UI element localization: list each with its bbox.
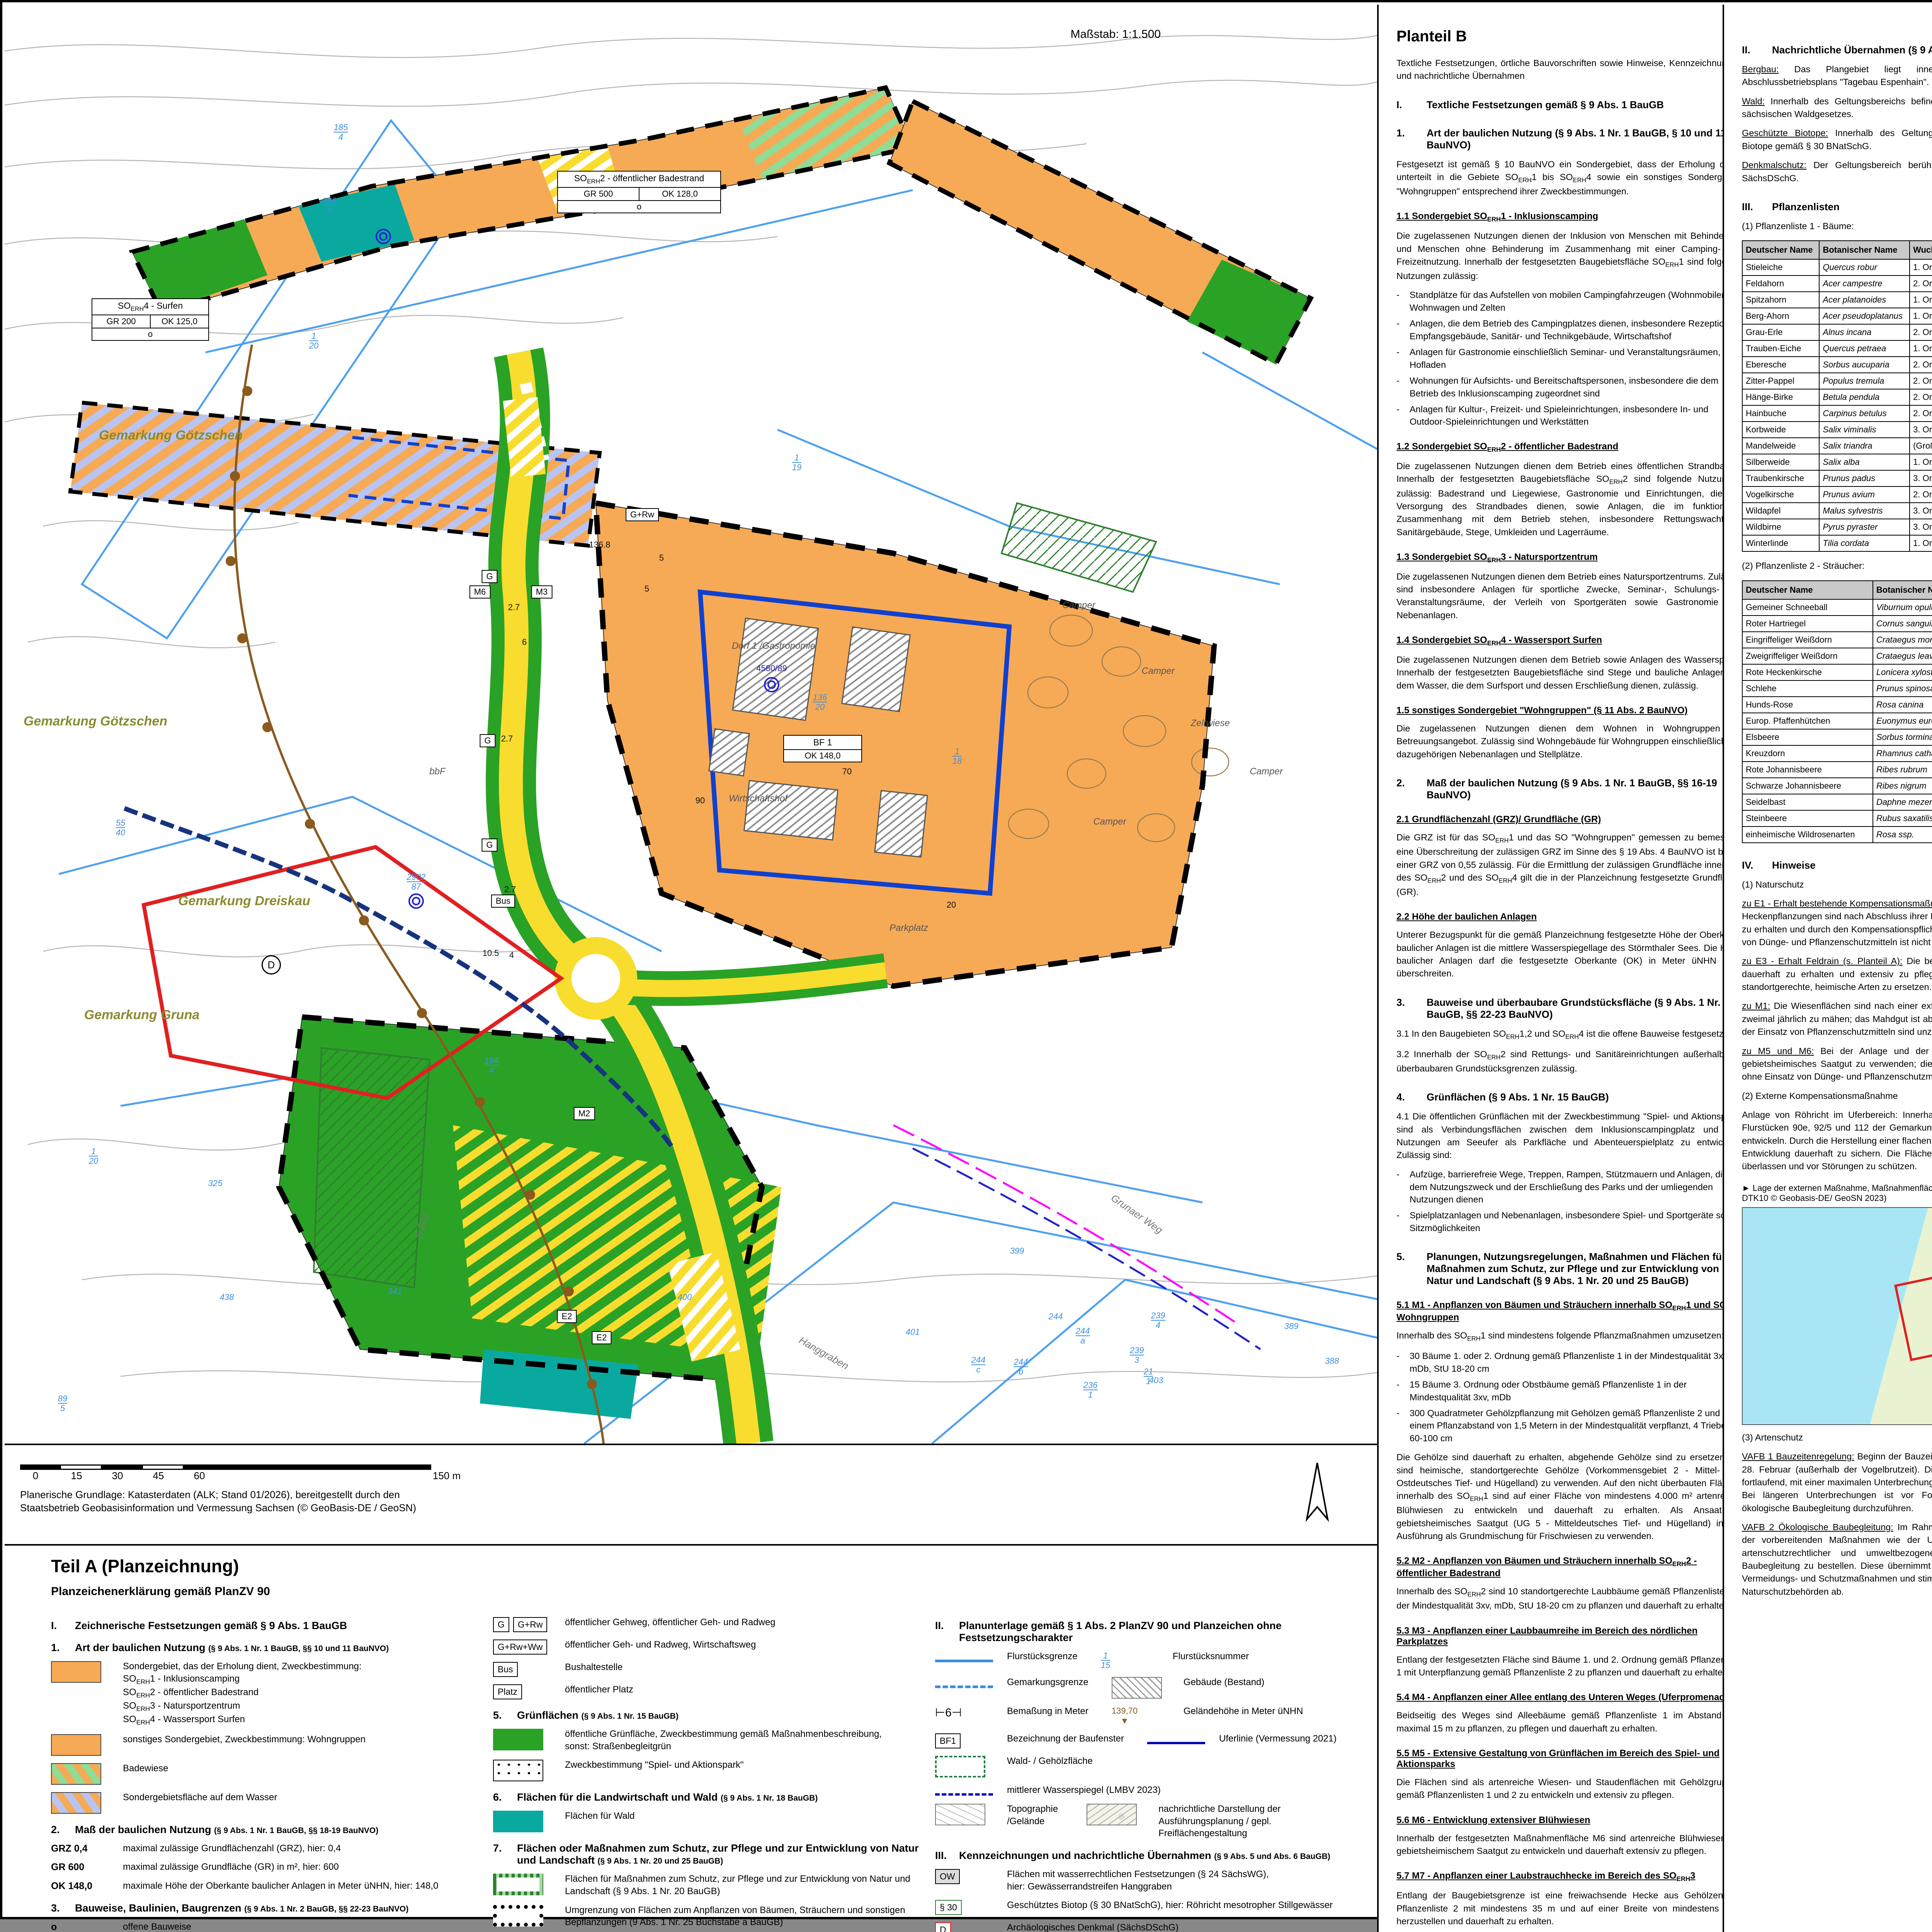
- legend-swatch: ⊢6⊣: [935, 1706, 993, 1719]
- list-caption: (1) Naturschutz: [1742, 878, 1932, 891]
- legend-item: OWFlächen mit wasserrechtlichen Festsetz…: [935, 1868, 1362, 1893]
- table-row: Gemeiner SchneeballViburnum opulusM1 M3 …: [1742, 599, 1932, 616]
- table-row: Europ. PfaffenhütchenEuonymus europaeusM…: [1742, 713, 1932, 729]
- legend-item-label: Geländehöhe in Meter üNHN: [1184, 1705, 1303, 1718]
- legend-item-pair: Flurstücksgrenze115Flurstücksnummer: [935, 1650, 1362, 1670]
- table-row: VogelkirschePrunus avium2. OrdnungM1 M5: [1742, 486, 1932, 503]
- legend-item: GRZ 0,4maximal zulässige Grundflächenzah…: [51, 1842, 478, 1855]
- table-cell: Silberweide: [1742, 454, 1819, 470]
- paragraph: Innerhalb des SOERH1 sind mindestens fol…: [1396, 1329, 1742, 1344]
- list-item-text: Aufzüge, barrierefreie Wege, Treppen, Ra…: [1410, 1168, 1742, 1206]
- legend-section-number: 3.: [51, 1902, 75, 1914]
- legend-section-number: III.: [935, 1850, 959, 1862]
- table-cell: Tilia cordata: [1819, 535, 1910, 551]
- legend-item-label: öffentlicher Platz: [565, 1684, 633, 1696]
- legend-title: Teil A (Planzeichnung): [51, 1556, 1377, 1577]
- table-cell: einheimische Wildrosenarten: [1742, 827, 1873, 843]
- column-title: Planteil B: [1396, 28, 1742, 45]
- paragraph: Denkmalschutz: Der Geltungsbereich berüh…: [1742, 159, 1932, 185]
- subsection-heading: 1.1 Sondergebiet SOERH1 - Inklusionscamp…: [1396, 211, 1742, 223]
- subsection-heading: 1.2 Sondergebiet SOERH2 - öffentlicher B…: [1396, 441, 1742, 454]
- legend-swatch: OK 148,0: [51, 1881, 109, 1892]
- figure-map: [1742, 1207, 1932, 1425]
- legend-swatch: G+Rw+Ww: [493, 1639, 551, 1655]
- table-cell: Roter Hartriegel: [1742, 616, 1873, 632]
- table-cell: Cornus sanguinea: [1873, 616, 1932, 632]
- table-cell: 2. Ordnung: [1910, 276, 1932, 292]
- table-row: Zweigriffeliger WeißdornCrataegus leavig…: [1742, 648, 1932, 664]
- list-item-text: Anlagen, die dem Betrieb des Campingplat…: [1410, 317, 1742, 343]
- legend-column: II.Planunterlage gemäß § 1 Abs. 2 PlanZV…: [935, 1610, 1377, 1932]
- table-cell: Rote Johannisbeere: [1742, 762, 1873, 778]
- table-cell: Hainbuche: [1742, 405, 1819, 422]
- table-cell: Quercus petraea: [1819, 340, 1910, 357]
- paragraph: Entlang der Baugebietsgrenze ist eine fr…: [1396, 1889, 1742, 1928]
- legend-section-title: Bauweise, Baulinien, Baugrenzen (§ 9 Abs…: [75, 1902, 408, 1914]
- table-row: Roter HartriegelCornus sanguineaM1 M3 M7: [1742, 616, 1932, 632]
- list-item: -Wohnungen für Aufsichts- und Bereitscha…: [1396, 374, 1742, 400]
- legend-item-label: öffentlicher Geh- und Radweg, Wirtschaft…: [565, 1639, 756, 1651]
- legend-item-label: Geschütztes Biotop (§ 30 BNatSchG), hier…: [1007, 1899, 1333, 1912]
- section-title: Maß der baulichen Nutzung (§ 9 Abs. 1 Nr…: [1427, 777, 1742, 801]
- legend-section-number: I.: [51, 1620, 75, 1632]
- legend-swatch: [51, 1661, 109, 1683]
- subsection-heading: 5.7 M7 - Anpflanzen einer Laubstrauchhec…: [1396, 1871, 1742, 1883]
- legend-text-symbol: o: [51, 1922, 57, 1932]
- bullet: -: [1396, 1378, 1410, 1404]
- legend-section-title: Planunterlage gemäß § 1 Abs. 2 PlanZV 90…: [959, 1620, 1362, 1644]
- list-item-text: 300 Quadratmeter Gehölzpflanzung mit Geh…: [1410, 1407, 1742, 1445]
- schablone-gr: GR 200: [92, 315, 150, 328]
- bullet: -: [1396, 1209, 1410, 1235]
- subsection-heading: 2.1 Grundflächenzahl (GRZ)/ Grundfläche …: [1396, 814, 1742, 825]
- legend-swatch: GRZ 0,4: [51, 1843, 109, 1854]
- legend-chip: BF1: [935, 1733, 961, 1748]
- table-cell: Europ. Pfaffenhütchen: [1742, 713, 1873, 729]
- legend-item-label: Flurstücksnummer: [1173, 1650, 1249, 1663]
- list-item-text: Anlagen für Kultur-, Freizeit- und Spiel…: [1410, 403, 1742, 429]
- table-cell: 2. Ordnung: [1910, 324, 1932, 340]
- legend-swatch: GG+Rw: [493, 1617, 551, 1632]
- legend-item-pair: Topographie /Geländenachrichtliche Darst…: [935, 1803, 1362, 1840]
- table-row: MandelweideSalix triandra(Großstrauch -4…: [1742, 438, 1932, 454]
- table-cell: Crataegus leavigata: [1873, 648, 1932, 664]
- table-cell: Salix alba: [1819, 454, 1910, 470]
- section-heading: 5.Planungen, Nutzungsregelungen, Maßnahm…: [1396, 1251, 1742, 1287]
- legend-item-pair: ⊢6⊣Bemaßung in Meter139,70▼Geländehöhe i…: [935, 1705, 1362, 1726]
- section-number: 3.: [1396, 997, 1427, 1020]
- table-row: Hunds-RoseRosa caninaM1 M3 M7: [1742, 697, 1932, 713]
- legend-item-label: nachrichtliche Darstellung der Ausführun…: [1158, 1803, 1362, 1840]
- figure-caption: ► Lage der externen Maßnahme, Maßnahmenf…: [1742, 1183, 1932, 1203]
- legend-item: Umgrenzung von Flächen zum Anpflanzen vo…: [493, 1904, 920, 1929]
- legend-item: Flächen für Maßnahmen zum Schutz, zur Pf…: [493, 1873, 920, 1897]
- table-cell: Prunus padus: [1819, 470, 1910, 486]
- legend-item: G+Rw+Wwöffentlicher Geh- und Radweg, Wir…: [493, 1639, 920, 1655]
- paragraph: Bergbau: Das Plangebiet liegt innerhalb …: [1742, 63, 1932, 89]
- table-cell: Rosa ssp.: [1873, 827, 1932, 843]
- section-title: Grünflächen (§ 9 Abs. 1 Nr. 15 BauGB): [1427, 1091, 1609, 1103]
- legend-section-heading: 1.Art der baulichen Nutzung (§ 9 Abs. 1 …: [51, 1642, 478, 1654]
- text-column-uebernahmen-pflanzenlisten: II.Nachrichtliche Übernahmen (§ 9 Abs. 6…: [1723, 5, 1932, 1932]
- list-caption: (2) Externe Kompensationsmaßnahme: [1742, 1090, 1932, 1102]
- table-cell: Vogelkirsche: [1742, 486, 1819, 503]
- table-row: Rote JohannisbeereRibes rubrumM1 M3 M7: [1742, 762, 1932, 778]
- paragraph: 3.1 In den Baugebieten SOERH1,2 und SOER…: [1396, 1027, 1742, 1042]
- bullet: -: [1396, 1168, 1410, 1206]
- table-cell: Rubus saxatilis: [1873, 810, 1932, 827]
- table-row: Schwarze JohannisbeereRibes nigrumM1 M3 …: [1742, 778, 1932, 794]
- legend-item-label: sonstiges Sondergebiet, Zweckbestimmung:…: [123, 1733, 366, 1746]
- paragraph: Die zugelassenen Nutzungen dienen dem Be…: [1396, 653, 1742, 692]
- table-cell: Pyrus pyraster: [1819, 519, 1910, 535]
- section-heading: 2.Maß der baulichen Nutzung (§ 9 Abs. 1 …: [1396, 777, 1742, 801]
- paragraph: zu E1 - Erhalt bestehende Kompensationsm…: [1742, 897, 1932, 949]
- table-cell: Eberesche: [1742, 357, 1819, 373]
- legend-text-symbol: OK 148,0: [51, 1881, 92, 1892]
- table-cell: Malus sylvestris: [1819, 503, 1910, 519]
- legend-area-swatch: [493, 1874, 543, 1895]
- section-title: Art der baulichen Nutzung (§ 9 Abs. 1 Nr…: [1427, 127, 1742, 151]
- bullet: -: [1396, 374, 1410, 400]
- plant-table-trees: Deutscher NameBotanischer NameWuchsordnu…: [1742, 240, 1932, 552]
- paragraph: 3.2 Innerhalb der SOERH2 sind Rettungs- …: [1396, 1048, 1742, 1075]
- bullet: -: [1396, 1350, 1410, 1375]
- list-item: -15 Bäume 3. Ordnung oder Obstbäume gemä…: [1396, 1378, 1742, 1404]
- table-row: WildapfelMalus sylvestris3. OrdnungM1 M5: [1742, 503, 1932, 519]
- legend-panel: Teil A (Planzeichnung) Planzeichenerklär…: [5, 1546, 1377, 1917]
- table-cell: Zweigriffeliger Weißdorn: [1742, 648, 1873, 664]
- legend-swatch: BF1: [935, 1733, 993, 1748]
- paragraph: Unterer Bezugspunkt für die gemäß Planze…: [1396, 929, 1742, 980]
- table-row: StieleicheQuercus robur1. OrdnungM1 M5: [1742, 259, 1932, 276]
- list-item-text: Standplätze für das Aufstellen von mobil…: [1410, 289, 1742, 314]
- biotop-symbol: § 30: [935, 1900, 962, 1915]
- legend-swatch: [493, 1811, 551, 1832]
- scale-tick: 150 m: [433, 1470, 461, 1482]
- table-cell: 2. Ordnung: [1910, 486, 1932, 503]
- table-row: EberescheSorbus aucuparia2. OrdnungM1 M2…: [1742, 357, 1932, 373]
- legend-swatch: OW: [935, 1869, 993, 1884]
- section-heading: II.Nachrichtliche Übernahmen (§ 9 Abs. 6…: [1742, 44, 1932, 56]
- table-cell: Acer pseudoplatanus: [1819, 308, 1910, 324]
- table-cell: Lonicera xylosteum: [1873, 664, 1932, 680]
- text-column-planteil-b: Planteil BTextliche Festsetzungen, örtli…: [1377, 5, 1760, 1932]
- paragraph: zu M5 und M6: Bei der Anlage und der Bew…: [1742, 1045, 1932, 1083]
- scale-tick: 45: [153, 1470, 164, 1482]
- table-header: Botanischer Name: [1819, 241, 1910, 259]
- legend-item: sonstiges Sondergebiet, Zweckbestimmung:…: [51, 1733, 478, 1756]
- section-heading: 3.Bauweise und überbaubare Grundstücksfl…: [1396, 997, 1742, 1020]
- table-cell: Wildapfel: [1742, 503, 1819, 519]
- nutzungsschablone: BF 1OK 148,0: [783, 735, 862, 762]
- table-cell: Rosa canina: [1873, 697, 1932, 713]
- table-cell: 3. Ordnung: [1910, 422, 1932, 438]
- legend-section-number: 2.: [51, 1824, 75, 1836]
- legend-item-label: Sondergebiet, das der Erholung dient, Zw…: [123, 1660, 362, 1727]
- paragraph: Die zugelassenen Nutzungen dienen dem Be…: [1396, 460, 1742, 539]
- legend-item: Sondergebietsfläche auf dem Wasser: [51, 1791, 478, 1814]
- legend-swatch: [935, 1785, 993, 1796]
- legend-item-label: öffentliche Grünfläche, Zweckbestimmung …: [565, 1728, 882, 1752]
- legend-item-label: mittlerer Wasserspiegel (LMBV 2023): [1007, 1784, 1161, 1796]
- table-row: Eingriffeliger WeißdornCrataegus monogyn…: [1742, 632, 1932, 648]
- table-cell: Berg-Ahorn: [1742, 308, 1819, 324]
- legend-subtitle: Planzeichenerklärung gemäß PlanZV 90: [51, 1585, 1377, 1598]
- table-cell: 1. Ordnung: [1910, 340, 1932, 357]
- table-cell: 1. Ordnung: [1910, 454, 1932, 470]
- legend-swatch: [935, 1804, 993, 1825]
- table-cell: Mandelweide: [1742, 438, 1819, 454]
- section-number: III.: [1742, 201, 1772, 213]
- legend-item: GG+Rwöffentlicher Gehweg, öffentlicher G…: [493, 1616, 920, 1632]
- subsection-heading: 5.1 M1 - Anpflanzen von Bäumen und Sträu…: [1396, 1300, 1742, 1323]
- table-cell: Rhamnus cathartica: [1873, 745, 1932, 762]
- bullet: -: [1396, 403, 1410, 429]
- legend-section-title: Art der baulichen Nutzung (§ 9 Abs. 1 Nr…: [75, 1642, 389, 1654]
- list-item: -Spielplatzanlagen und Nebenanlagen, ins…: [1396, 1209, 1742, 1235]
- parcel-number-sample: 115: [1101, 1651, 1110, 1670]
- table-cell: 3. Ordnung: [1910, 470, 1932, 486]
- dimension-symbol: ⊢6⊣: [935, 1706, 962, 1719]
- section-heading: 1.Art der baulichen Nutzung (§ 9 Abs. 1 …: [1396, 127, 1742, 151]
- scale-tick: 30: [112, 1470, 123, 1482]
- subsection-heading: 5.5 M5 - Extensive Gestaltung von Grünfl…: [1396, 1748, 1742, 1770]
- legend-item: OK 148,0maximale Höhe der Oberkante baul…: [51, 1880, 478, 1892]
- table-cell: Alnus incana: [1819, 324, 1910, 340]
- table-row: Trauben-EicheQuercus petraea1. OrdnungM1…: [1742, 340, 1932, 357]
- paragraph: Die zugelassenen Nutzungen dienen dem Wo…: [1396, 722, 1742, 761]
- plan-drawing-map: [5, 5, 1377, 1444]
- table-cell: 2. Ordnung: [1910, 389, 1932, 405]
- map-footer: 015304560150 m Planerische Grundlage: Ka…: [5, 1444, 1377, 1546]
- legend-item-label: Bemaßung in Meter: [1007, 1705, 1088, 1718]
- table-cell: Traubenkirsche: [1742, 470, 1819, 486]
- legend-swatch: Platz: [493, 1684, 551, 1699]
- elevation-sample: 139,70▼: [1112, 1706, 1138, 1726]
- legend-swatch: [1112, 1677, 1170, 1699]
- table-cell: Euonymus europaeus: [1873, 713, 1932, 729]
- legend-area-swatch: [51, 1792, 101, 1814]
- legend-item-label: Flächen für Wald: [565, 1810, 635, 1822]
- table-cell: Spitzahorn: [1742, 292, 1819, 308]
- table-cell: 3. Ordnung: [1910, 503, 1932, 519]
- paragraph: Beidseitig des Weges sind Alleebäume gem…: [1396, 1709, 1742, 1735]
- subsection-heading: 5.2 M2 - Anpflanzen von Bäumen und Sträu…: [1396, 1556, 1742, 1579]
- legend-item-label: maximale Höhe der Oberkante baulicher An…: [123, 1880, 438, 1892]
- table-cell: Winterlinde: [1742, 535, 1819, 551]
- paragraph: Die zugelassenen Nutzungen dienen der In…: [1396, 230, 1742, 282]
- table-row: SteinbeereRubus saxatilisM1 M3 M7: [1742, 810, 1932, 827]
- subsection-heading: 1.4 Sondergebiet SOERH4 - Wassersport Su…: [1396, 635, 1742, 647]
- paragraph: Die zugelassenen Nutzungen dienen dem Be…: [1396, 570, 1742, 622]
- paragraph: Entlang der festgesetzten Fläche sind Bä…: [1396, 1653, 1742, 1679]
- legend-item: § 30Geschütztes Biotop (§ 30 BNatSchG), …: [935, 1899, 1362, 1915]
- legend-swatch: [51, 1792, 109, 1814]
- list-item-text: 15 Bäume 3. Ordnung oder Obstbäume gemäß…: [1410, 1378, 1742, 1404]
- section-heading: I.Textliche Festsetzungen gemäß § 9 Abs.…: [1396, 99, 1742, 111]
- legend-item-label: Flächen für Maßnahmen zum Schutz, zur Pf…: [565, 1873, 920, 1897]
- table-cell: Crataegus monogyna: [1873, 632, 1932, 648]
- legend-swatch: [1147, 1733, 1205, 1744]
- table-row: ElsbeereSorbus torminalisM1 M3 M7: [1742, 729, 1932, 745]
- legend-area-swatch: [1087, 1804, 1137, 1825]
- table-cell: Sorbus torminalis: [1873, 729, 1932, 745]
- legend-swatch: [935, 1677, 993, 1688]
- paragraph: Die Flächen sind als artenreiche Wiesen-…: [1396, 1776, 1742, 1802]
- table-cell: Daphne mezerum: [1873, 794, 1932, 810]
- legend-item-label: Topographie /Gelände: [1007, 1803, 1063, 1827]
- schablone-hoehe: OK 148,0: [784, 750, 861, 762]
- legend-section-number: II.: [935, 1620, 959, 1644]
- subsection-heading: 5.4 M4 - Anpflanzen einer Allee entlang …: [1396, 1692, 1742, 1703]
- table-row: Zitter-PappelPopulus tremula2. OrdnungM1…: [1742, 373, 1932, 389]
- table-header: Deutscher Name: [1742, 241, 1819, 259]
- schablone-bauweise: o: [92, 328, 208, 340]
- table-cell: Prunus spinosa: [1873, 680, 1932, 697]
- subsection-heading: 5.3 M3 - Anpflanzen einer Laubbaumreihe …: [1396, 1626, 1742, 1647]
- legend-area-swatch: [493, 1905, 543, 1927]
- legend-chip: Bus: [493, 1662, 518, 1677]
- table-row: WildbirnePyrus pyraster3. OrdnungM1 M5: [1742, 519, 1932, 535]
- table-row: SeidelbastDaphne mezerumM1 M3 M7: [1742, 794, 1932, 810]
- legend-section-heading: I.Zeichnerische Festsetzungen gemäß § 9 …: [51, 1620, 478, 1632]
- table-cell: Schlehe: [1742, 680, 1873, 697]
- legend-swatch: [935, 1651, 993, 1662]
- scale-bar: [20, 1460, 1362, 1470]
- table-cell: Quercus robur: [1819, 259, 1910, 276]
- table-cell: Hunds-Rose: [1742, 697, 1873, 713]
- table-row: SpitzahornAcer platanoides1. OrdnungM1 M…: [1742, 292, 1932, 308]
- table-row: Berg-AhornAcer pseudoplatanus1. OrdnungM…: [1742, 308, 1932, 324]
- north-arrow-icon: [1304, 1461, 1331, 1522]
- legend-column: I.Zeichnerische Festsetzungen gemäß § 9 …: [51, 1610, 493, 1932]
- legend-item-label: Flächen mit wasserrechtlichen Festsetzun…: [1007, 1868, 1269, 1893]
- legend-item-pair: GemarkungsgrenzeGebäude (Bestand): [935, 1676, 1362, 1699]
- legend-section-title: Maß der baulichen Nutzung (§ 9 Abs. 1 Nr…: [75, 1824, 378, 1836]
- legend-swatch: Bus: [493, 1662, 551, 1677]
- table-row: KreuzdornRhamnus catharticaM1 M3 M7: [1742, 745, 1932, 762]
- table-cell: Zitter-Pappel: [1742, 373, 1819, 389]
- table-cell: Schwarze Johannisbeere: [1742, 778, 1873, 794]
- legend-item: DArchäologisches Denkmal (SächsDSchG): [935, 1922, 1362, 1932]
- legend-text-symbol: GRZ 0,4: [51, 1843, 87, 1854]
- legend-swatch: 115: [1101, 1651, 1159, 1670]
- legend-section-title: Grünflächen (§ 9 Abs. 1 Nr. 15 BauGB): [517, 1709, 679, 1721]
- list-caption: (1) Pflanzenliste 1 - Bäume:: [1742, 220, 1932, 233]
- paragraph: Die Gehölze sind dauerhaft zu erhalten, …: [1396, 1451, 1742, 1543]
- legend-section-title: Flächen oder Maßnahmen zum Schutz, zur P…: [517, 1842, 920, 1866]
- section-number: II.: [1742, 44, 1772, 56]
- table-cell: Hänge-Birke: [1742, 389, 1819, 405]
- nutzungsschablone: SOERH4 - SurfenGR 200OK 125,0o: [92, 298, 209, 341]
- list-item: -300 Quadratmeter Gehölzpflanzung mit Ge…: [1396, 1407, 1742, 1445]
- table-cell: 3. Ordnung: [1910, 519, 1932, 535]
- legend-item-label: Badewiese: [123, 1762, 168, 1775]
- legend-item: Flächen für Wald: [493, 1810, 920, 1832]
- subsection-heading: 5.6 M6 - Entwicklung extensiver Blühwies…: [1396, 1815, 1742, 1826]
- legend-item: mittlerer Wasserspiegel (LMBV 2023): [935, 1784, 1362, 1796]
- paragraph: Geschützte Biotope: Innerhalb des Geltun…: [1742, 127, 1932, 153]
- list-caption: (2) Pflanzenliste 2 - Sträucher:: [1742, 560, 1932, 572]
- section-heading: III.Pflanzenlisten: [1742, 201, 1932, 213]
- plant-table-shrubs: Deutscher NameBotanischer NameEignung fü…: [1742, 580, 1932, 843]
- table-cell: Rote Heckenkirsche: [1742, 664, 1873, 680]
- table-cell: Grau-Erle: [1742, 324, 1819, 340]
- table-cell: Eingriffeliger Weißdorn: [1742, 632, 1873, 648]
- subsection-heading: 2.2 Höhe der baulichen Anlagen: [1396, 912, 1742, 922]
- nutzungsschablone: SOERH2 - öffentlicher BadestrandGR 500OK…: [557, 171, 721, 213]
- list-item-text: Wohnungen für Aufsichts- und Bereitschaf…: [1410, 374, 1742, 400]
- list-item: -Aufzüge, barrierefreie Wege, Treppen, R…: [1396, 1168, 1742, 1206]
- table-cell: 2. Ordnung: [1910, 373, 1932, 389]
- legend-section-number: 7.: [493, 1842, 517, 1866]
- section-heading: 4.Grünflächen (§ 9 Abs. 1 Nr. 15 BauGB): [1396, 1091, 1742, 1103]
- table-cell: Elsbeere: [1742, 729, 1873, 745]
- legend-column: GG+Rwöffentlicher Gehweg, öffentlicher G…: [493, 1610, 935, 1932]
- legend-item-pair: BF1Bezeichnung der BaufensterUferlinie (…: [935, 1733, 1362, 1748]
- table-cell: Acer platanoides: [1819, 292, 1910, 308]
- table-cell: Stieleiche: [1742, 259, 1819, 276]
- legend-item-label: offene Bauweise: [123, 1921, 191, 1932]
- section-heading: IV.Hinweise: [1742, 859, 1932, 871]
- scale-bar-ticks: 015304560150 m: [20, 1470, 1362, 1481]
- legend-swatch: 139,70▼: [1112, 1706, 1170, 1726]
- table-cell: Prunus avium: [1819, 486, 1910, 503]
- paragraph: Die GRZ ist für das SOERH1 und das SO "W…: [1396, 831, 1742, 898]
- table-cell: Wildbirne: [1742, 519, 1819, 535]
- legend-item-label: Zweckbestimmung "Spiel- und Aktionspark": [565, 1759, 744, 1771]
- table-row: KorbweideSalix viminalis3. OrdnungM1 M5: [1742, 422, 1932, 438]
- legend-item-label: Uferlinie (Vermessung 2021): [1219, 1733, 1337, 1745]
- list-item: -Anlagen für Gastronomie einschließlich …: [1396, 346, 1742, 371]
- table-cell: 2. Ordnung: [1910, 405, 1932, 422]
- table-row: HainbucheCarpinus betulus2. OrdnungM1 M5: [1742, 405, 1932, 422]
- table-cell: Feldahorn: [1742, 276, 1819, 292]
- list-item-text: 30 Bäume 1. oder 2. Ordnung gemäß Pflanz…: [1410, 1350, 1742, 1375]
- map-scale-label: Maßstab: 1:1.500: [1071, 28, 1161, 41]
- section-number: 2.: [1396, 777, 1427, 801]
- paragraph: Innerhalb der festgesetzten Maßnahmenflä…: [1396, 1832, 1742, 1858]
- legend-section-number: 1.: [51, 1642, 75, 1654]
- table-cell: 1. Ordnung: [1910, 259, 1932, 276]
- legend-chip: G: [493, 1617, 509, 1632]
- legend-item-label: Flurstücksgrenze: [1007, 1650, 1078, 1663]
- table-cell: Ribes nigrum: [1873, 778, 1932, 794]
- paragraph: Anlage von Röhricht im Uferbereich: Inne…: [1742, 1109, 1932, 1173]
- legend-item-label: maximal zulässige Grundfläche (GR) in m²…: [123, 1861, 339, 1873]
- table-row: SilberweideSalix alba1. OrdnungM1 M5: [1742, 454, 1932, 470]
- paragraph: zu M1: Die Wiesenflächen sind nach einer…: [1742, 1000, 1932, 1038]
- legend-item-label: öffentlicher Gehweg, öffentlicher Geh- u…: [565, 1616, 776, 1629]
- list-item: -Standplätze für das Aufstellen von mobi…: [1396, 289, 1742, 314]
- legend-chip: G+Rw+Ww: [493, 1639, 547, 1655]
- table-cell: Seidelbast: [1742, 794, 1873, 810]
- section-title: Pflanzenlisten: [1772, 201, 1840, 213]
- table-row: Rote HeckenkirscheLonicera xylosteumM1 M…: [1742, 664, 1932, 680]
- legend-section-heading: 5.Grünflächen (§ 9 Abs. 1 Nr. 15 BauGB): [493, 1709, 920, 1721]
- table-cell: Salix triandra: [1819, 438, 1910, 454]
- section-number: IV.: [1742, 859, 1772, 871]
- section-title: Planungen, Nutzungsregelungen, Maßnahmen…: [1427, 1251, 1742, 1287]
- subsection-heading: 1.3 Sondergebiet SOERH3 - Natursportzent…: [1396, 552, 1742, 564]
- legend-section-heading: 2.Maß der baulichen Nutzung (§ 9 Abs. 1 …: [51, 1824, 478, 1836]
- figure-red-outline: [1894, 1262, 1932, 1361]
- legend-item-label: Gebäude (Bestand): [1184, 1676, 1264, 1689]
- legend-area-swatch: [493, 1811, 543, 1832]
- ow-symbol: OW: [935, 1869, 960, 1884]
- list-item: -30 Bäume 1. oder 2. Ordnung gemäß Pflan…: [1396, 1350, 1742, 1375]
